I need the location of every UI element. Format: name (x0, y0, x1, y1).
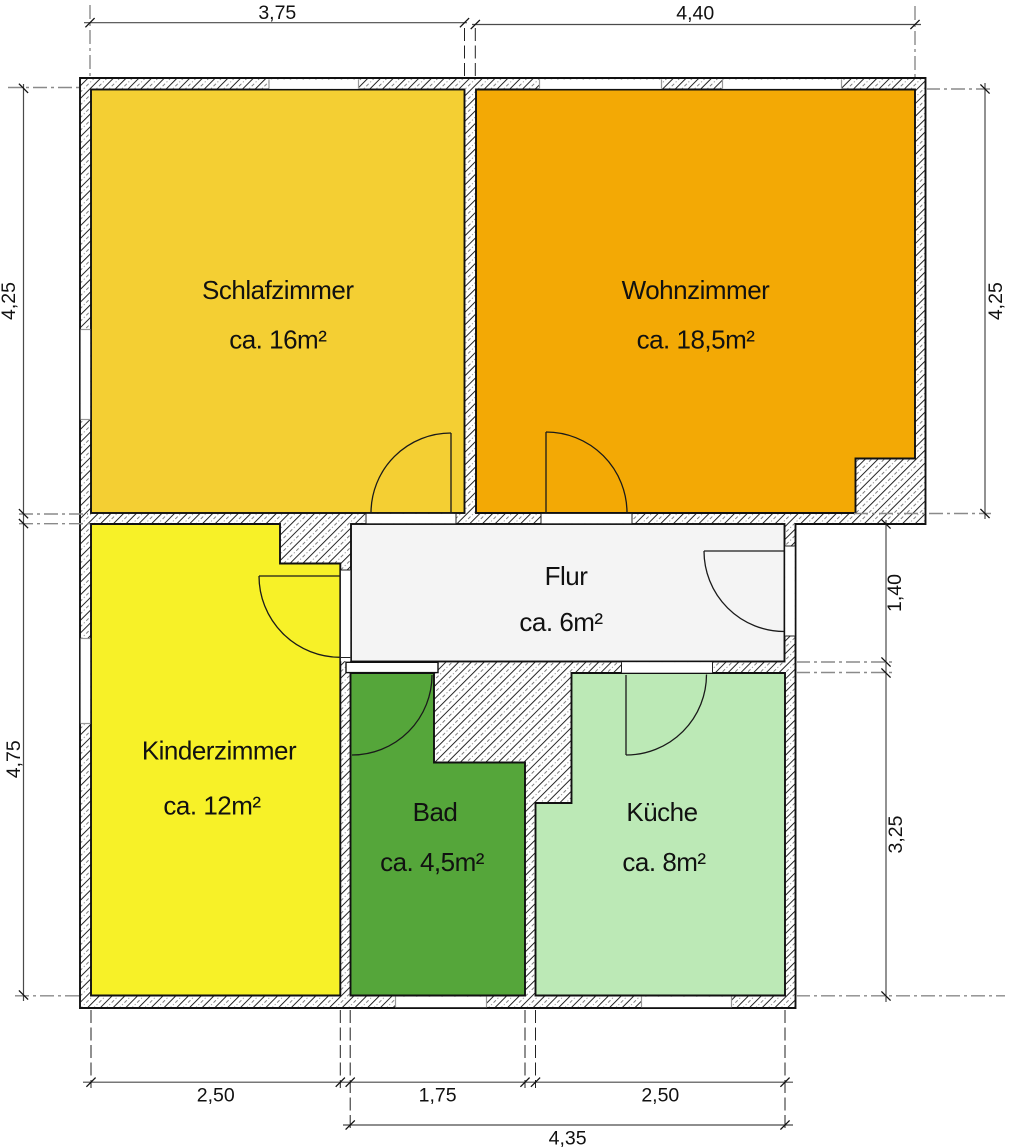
svg-text:ca. 18,5m²: ca. 18,5m² (637, 325, 756, 355)
svg-text:2,50: 2,50 (197, 1085, 235, 1107)
svg-text:1,75: 1,75 (419, 1085, 457, 1107)
svg-text:3,25: 3,25 (885, 815, 907, 853)
svg-text:4,40: 4,40 (676, 3, 714, 25)
svg-text:ca. 8m²: ca. 8m² (622, 847, 706, 877)
svg-text:3,75: 3,75 (258, 2, 296, 24)
svg-text:Wohnzimmer: Wohnzimmer (622, 275, 771, 305)
svg-text:ca. 4,5m²: ca. 4,5m² (380, 847, 485, 877)
svg-text:2,50: 2,50 (641, 1085, 679, 1107)
svg-text:ca. 12m²: ca. 12m² (163, 791, 261, 821)
svg-text:ca. 6m²: ca. 6m² (519, 607, 603, 637)
svg-text:4,25: 4,25 (0, 282, 20, 320)
svg-text:Bad: Bad (413, 797, 458, 827)
svg-text:Küche: Küche (626, 797, 697, 827)
svg-text:4,35: 4,35 (549, 1128, 587, 1148)
svg-text:Schlafzimmer: Schlafzimmer (202, 275, 354, 305)
svg-text:ca. 16m²: ca. 16m² (229, 325, 327, 355)
svg-text:1,40: 1,40 (884, 574, 906, 612)
svg-text:4,75: 4,75 (3, 740, 25, 778)
svg-text:4,25: 4,25 (985, 282, 1007, 320)
svg-text:Kinderzimmer: Kinderzimmer (142, 736, 297, 766)
svg-text:Flur: Flur (545, 561, 589, 591)
